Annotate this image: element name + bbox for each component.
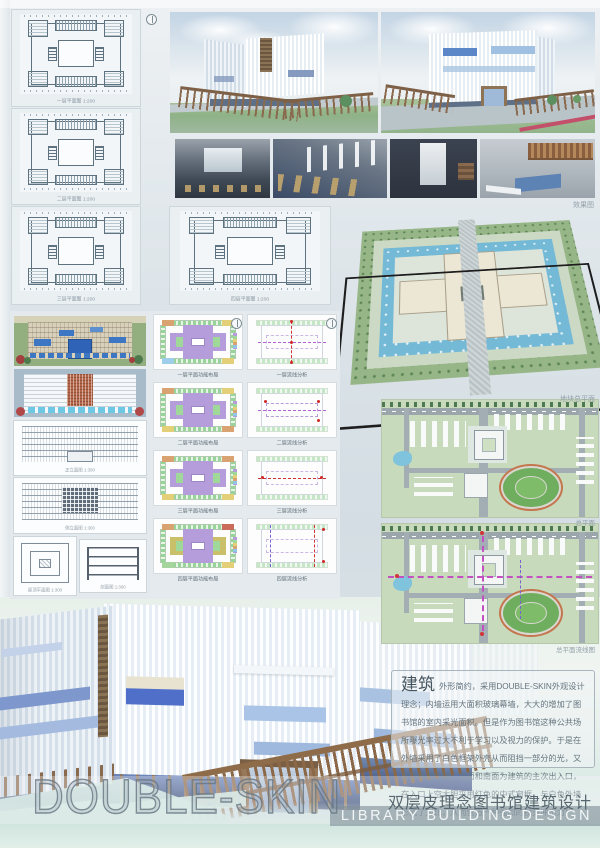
green-pad — [213, 405, 220, 414]
service-counter — [515, 173, 561, 192]
glass-patch — [34, 339, 51, 346]
function-zone — [162, 426, 174, 432]
tree — [573, 95, 581, 103]
window-wall — [204, 148, 242, 172]
functional-layout-plan — [159, 387, 237, 433]
green-pad — [213, 337, 220, 346]
line-elevation-front: 正立面图 1:300 — [14, 421, 146, 475]
presentation-board: 一层平面图 1:200 二层平面图 1:200 — [0, 0, 600, 848]
dimension-ticks — [24, 188, 128, 190]
plan-cell-flow-1: 一层流线分析 — [248, 315, 336, 379]
plan-paper — [248, 315, 336, 369]
perimeter-rooms — [160, 325, 167, 358]
blueprint-caption: 三层平面图 1:200 — [24, 295, 129, 302]
description-title: 建筑 — [401, 676, 435, 694]
road-vertical — [404, 408, 409, 488]
plan-caption: 四层流线分析 — [255, 575, 330, 583]
campus-circulation-plan — [382, 524, 598, 643]
function-zone — [222, 426, 234, 432]
road-vertical — [404, 532, 409, 613]
tree — [24, 357, 31, 364]
function-zone — [162, 494, 174, 500]
floor-plan-blueprint-4: 四层平面图 1:200 — [170, 207, 330, 304]
courtyard — [191, 542, 205, 550]
dormitory-cluster — [410, 421, 466, 447]
window-band — [244, 705, 326, 722]
dimension-ticks — [24, 114, 128, 116]
entry-dot — [261, 476, 264, 479]
flow-line — [258, 410, 325, 411]
dimension-ticks — [24, 288, 128, 290]
corner-block — [28, 169, 48, 185]
plan-cell-func-4: 四层平面功能布局 — [154, 519, 242, 583]
window-band — [0, 715, 100, 740]
line-elevation-side: 侧立面图 1:300 — [14, 478, 146, 533]
tree — [16, 407, 25, 416]
plan-legend — [233, 333, 237, 349]
interior-render-1 — [175, 139, 270, 198]
atrium-window — [420, 143, 446, 185]
glass-patch — [59, 330, 74, 336]
corner-block — [104, 119, 124, 135]
functional-layout-plan — [159, 319, 237, 365]
plan-legend — [233, 469, 237, 485]
entrance-portal — [481, 86, 507, 106]
plan-cell-flow-2: 二层流线分析 — [248, 383, 336, 447]
color-elevation-front — [14, 316, 146, 366]
entry-block — [55, 76, 98, 87]
perimeter-rooms — [160, 393, 167, 426]
bookshelf — [458, 163, 474, 181]
blueprint-paper — [20, 211, 133, 292]
plan-caption: 二层流线分析 — [255, 439, 330, 447]
corner-block — [28, 71, 48, 87]
roof-core — [39, 559, 51, 568]
pond — [393, 576, 412, 590]
floor-plan-blueprint-2: 二层平面图 1:200 — [12, 109, 140, 204]
corner-block — [28, 217, 48, 233]
entry-block — [55, 119, 98, 130]
design-description-panel: 建筑 外形简约，采用DOUBLE-SKIN外观设计理念；内墙运用大面积玻璃幕墙，… — [391, 670, 595, 768]
plan-paper — [248, 519, 336, 573]
color-elevation-side — [14, 369, 146, 417]
library-footprint — [474, 430, 504, 460]
corner-block — [104, 71, 124, 87]
green-pad — [176, 337, 183, 346]
blueprint-paper — [20, 113, 133, 192]
flow-line — [270, 525, 271, 567]
function-zone — [162, 524, 174, 530]
entrance-glass — [484, 89, 504, 106]
window-band — [443, 48, 477, 56]
courtyard — [191, 474, 205, 482]
building-column — [576, 562, 593, 610]
courtyard — [191, 406, 205, 414]
function-zone — [162, 320, 174, 326]
interior-render-3 — [390, 139, 477, 198]
wood-screen — [260, 38, 272, 72]
window-band — [491, 46, 535, 54]
blueprint-caption: 二层平面图 1:200 — [24, 195, 129, 202]
plan-paper — [154, 315, 242, 369]
plan-legend — [233, 537, 237, 553]
corner-block — [28, 268, 48, 284]
corner-block — [189, 217, 214, 233]
corner-block — [286, 217, 311, 233]
red-lattice-center — [67, 374, 94, 406]
courtyard — [58, 139, 94, 166]
courtyard — [58, 40, 94, 67]
blueprint-caption: 一层平面图 1:200 — [24, 97, 129, 104]
stair-core — [48, 146, 57, 160]
courtyard — [191, 338, 205, 346]
blueprint-paper — [180, 211, 321, 292]
auditorium-footprint — [464, 473, 488, 498]
corner-block — [28, 20, 48, 36]
elevation-caption: 侧立面图 1:300 — [27, 525, 133, 531]
section-caption: 剖面图 1:300 — [87, 584, 140, 590]
circulation-axis — [520, 560, 521, 620]
circulation-analysis-plan — [253, 319, 331, 365]
site-perspective-caption: 地块总平面 — [560, 394, 595, 404]
window-band — [2, 642, 62, 657]
corner-block — [189, 268, 214, 284]
circulation-analysis-plan — [253, 523, 331, 569]
building-column — [576, 437, 593, 484]
stair-core — [95, 47, 104, 61]
circulation-analysis-plan — [253, 455, 331, 501]
interior-render-4 — [480, 139, 595, 198]
north-arrow-icon — [146, 14, 157, 25]
entry-block — [223, 274, 277, 285]
courtyard — [227, 237, 272, 264]
plan-cell-func-1: 一层平面功能布局 — [154, 315, 242, 379]
function-zone — [162, 562, 174, 568]
corner-block — [104, 20, 124, 36]
plan-caption: 二层平面功能布局 — [161, 439, 236, 447]
plan-cell-flow-3: 三层流线分析 — [248, 451, 336, 515]
function-zone — [162, 388, 174, 394]
dark-lattice-center — [62, 487, 99, 513]
circulation-axis — [388, 576, 591, 578]
functional-layout-plan — [159, 523, 237, 569]
ground-floor-glass-row — [30, 353, 130, 358]
blueprint-paper — [20, 14, 133, 94]
tree — [135, 407, 144, 416]
plan-caption: 三层平面功能布局 — [161, 507, 236, 515]
circulation-analysis-plan — [253, 387, 331, 433]
green-pad — [213, 473, 220, 482]
bookshelves — [307, 139, 387, 171]
entrance-porch — [67, 451, 93, 462]
elevation-facade — [28, 322, 132, 359]
dimension-ticks — [24, 90, 128, 92]
corner-block — [28, 119, 48, 135]
white-ledge — [234, 665, 334, 676]
section-linework — [87, 547, 140, 579]
perimeter-rooms — [160, 529, 167, 562]
dormitory-cluster — [410, 545, 466, 571]
plan-cell-flow-4: 四层流线分析 — [248, 519, 336, 583]
function-zone — [222, 562, 234, 568]
perimeter-rooms — [256, 426, 328, 432]
teaching-cluster — [414, 477, 453, 496]
function-zone — [222, 456, 234, 462]
stair-core — [48, 47, 57, 61]
window-band — [126, 688, 184, 706]
campus-master-plan — [382, 400, 598, 517]
window-band — [0, 686, 90, 710]
stair-core — [48, 245, 57, 259]
tree — [134, 355, 143, 364]
tree — [340, 95, 352, 107]
green-pad — [213, 541, 220, 550]
green-pad — [176, 541, 183, 550]
entry-dot — [322, 560, 325, 563]
plan-caption: 一层平面功能布局 — [161, 371, 236, 379]
building-side-face — [537, 36, 555, 101]
function-zone — [162, 456, 174, 462]
functional-layout-plan — [159, 455, 237, 501]
courtyard — [58, 237, 94, 264]
perimeter-rooms — [256, 562, 328, 568]
entry-dot — [322, 528, 325, 531]
stair-core — [275, 245, 285, 259]
corner-block — [104, 169, 124, 185]
circulation-plan-caption: 总平面流线图 — [556, 644, 595, 654]
building-front-face — [246, 33, 324, 98]
plan-paper — [248, 451, 336, 505]
reading-desks — [278, 174, 365, 197]
tree-row — [382, 526, 598, 531]
flow-line — [314, 525, 315, 567]
entry-dot — [317, 400, 320, 403]
stair-core — [215, 245, 225, 259]
window-band — [288, 70, 314, 77]
roof-plan: 屋顶平面图 1:300 — [14, 537, 76, 595]
window-band — [214, 76, 234, 82]
roof-plan-caption: 屋顶平面图 1:300 — [20, 587, 70, 593]
green-pad — [176, 405, 183, 414]
plan-legend — [233, 401, 237, 417]
interior-render-2 — [273, 139, 387, 198]
perimeter-rooms — [160, 461, 167, 494]
project-subtitle-en: LIBRARY BUILDING DESIGN — [341, 808, 592, 824]
running-track — [501, 591, 561, 635]
function-zone — [222, 494, 234, 500]
plan-paper — [154, 383, 242, 437]
section-drawing: 剖面图 1:300 — [80, 540, 146, 592]
circulation-axis — [482, 536, 484, 631]
top-margin-strip — [0, 0, 600, 8]
plan-cell-func-3: 三层平面功能布局 — [154, 451, 242, 515]
green-pad — [176, 473, 183, 482]
master-plan-caption: 总平面 — [576, 517, 596, 527]
entry-node — [395, 574, 399, 578]
north-arrow-icon — [231, 318, 242, 329]
reading-desks — [185, 185, 261, 192]
dimension-ticks — [185, 212, 315, 214]
function-zone — [162, 358, 174, 364]
window-band — [443, 66, 535, 72]
circulation-ring — [266, 539, 318, 554]
glass-patch — [109, 337, 126, 343]
dimension-ticks — [185, 288, 315, 290]
tree — [547, 95, 557, 105]
exterior-render-1 — [170, 12, 378, 133]
function-zone — [222, 358, 234, 364]
ground-floor-glass-row — [28, 407, 131, 413]
function-zone — [222, 388, 234, 394]
floor-plan-blueprint-1: 一层平面图 1:200 — [12, 10, 140, 106]
stair-core — [95, 245, 104, 259]
wood-screen — [98, 615, 108, 738]
stair-core — [95, 146, 104, 160]
exterior-render-2 — [381, 12, 595, 133]
entry-dot — [264, 400, 267, 403]
pond — [393, 451, 412, 465]
corner-block — [286, 268, 311, 284]
library-courtyard — [482, 438, 496, 452]
plan-caption: 四层平面功能布局 — [161, 575, 236, 583]
plan-caption: 三层流线分析 — [255, 507, 330, 515]
function-zone — [222, 524, 234, 530]
tree — [129, 357, 135, 363]
entry-block — [55, 274, 98, 285]
glass-patch — [90, 327, 102, 332]
bookshelf-wall — [528, 143, 592, 160]
dimension-ticks — [24, 212, 128, 214]
blueprint-caption: 四层平面图 1:200 — [184, 295, 315, 302]
elevation-caption: 正立面图 1:300 — [27, 467, 133, 473]
plan-paper — [248, 383, 336, 437]
corner-block — [104, 217, 124, 233]
corner-block — [104, 268, 124, 284]
renders-caption: 效果图 — [573, 200, 594, 210]
library-footprint — [474, 555, 504, 586]
dimension-ticks — [24, 15, 128, 17]
perimeter-rooms — [256, 494, 328, 500]
plan-paper — [154, 451, 242, 505]
flow-line — [258, 478, 325, 479]
entry-block — [55, 175, 98, 186]
plan-caption: 一层流线分析 — [255, 371, 330, 379]
plan-paper — [154, 519, 242, 573]
entry-block — [223, 217, 277, 228]
teaching-cluster — [414, 603, 453, 622]
entry-block — [55, 20, 98, 31]
project-title-outline: DOUBLE-SKIN — [32, 770, 341, 825]
sports-field — [515, 476, 546, 498]
elevation-facade — [24, 374, 136, 413]
plan-cell-func-2: 二层平面功能布局 — [154, 383, 242, 447]
site-perspective-plan — [342, 212, 598, 394]
floor-plan-blueprint-3: 三层平面图 1:200 — [12, 207, 140, 304]
north-arrow-icon — [326, 318, 337, 329]
running-track — [501, 466, 561, 510]
entry-block — [55, 217, 98, 228]
